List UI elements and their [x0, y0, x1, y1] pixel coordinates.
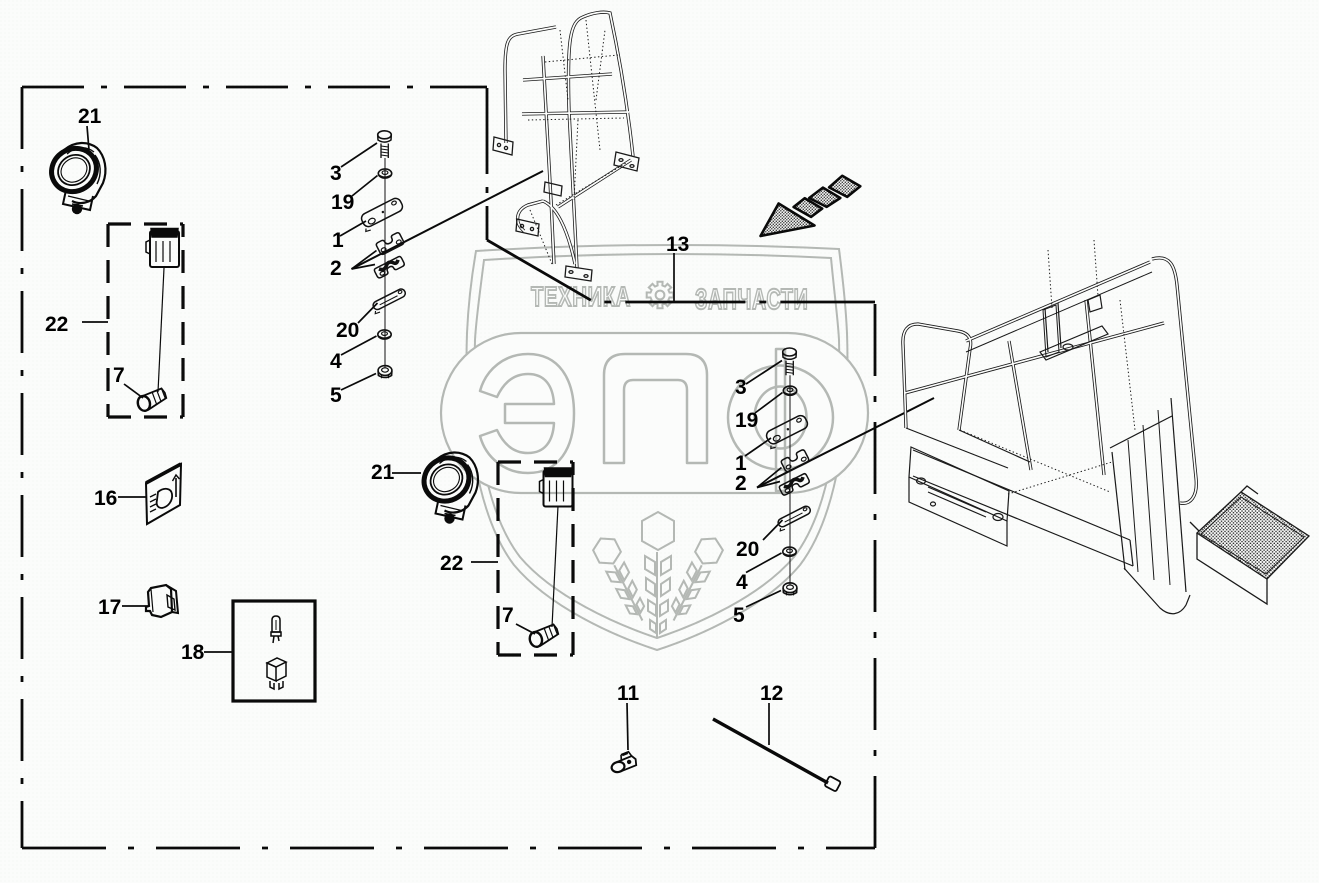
svg-text:21: 21: [371, 461, 395, 484]
svg-text:4: 4: [736, 571, 748, 594]
svg-text:13: 13: [666, 233, 689, 256]
svg-text:3: 3: [330, 162, 342, 185]
svg-text:12: 12: [760, 682, 783, 705]
svg-text:20: 20: [336, 319, 359, 342]
svg-text:7: 7: [502, 604, 514, 627]
svg-text:21: 21: [78, 105, 102, 128]
svg-text:17: 17: [98, 596, 121, 619]
svg-text:2: 2: [330, 257, 342, 280]
svg-text:22: 22: [45, 313, 68, 336]
svg-text:1: 1: [332, 229, 344, 252]
svg-text:11: 11: [617, 682, 640, 705]
svg-text:4: 4: [330, 350, 342, 373]
svg-text:5: 5: [733, 604, 745, 627]
svg-text:ЗАПЧАСТИ: ЗАПЧАСТИ: [695, 284, 808, 316]
svg-text:5: 5: [330, 384, 342, 407]
svg-text:7: 7: [113, 364, 125, 387]
svg-text:22: 22: [440, 552, 463, 575]
svg-text:18: 18: [181, 641, 205, 664]
svg-text:3: 3: [735, 376, 747, 399]
svg-text:20: 20: [736, 538, 759, 561]
svg-text:19: 19: [331, 191, 354, 214]
svg-text:16: 16: [94, 487, 117, 510]
svg-text:2: 2: [735, 472, 747, 495]
svg-text:ТЕХНИКА: ТЕХНИКА: [531, 282, 631, 313]
